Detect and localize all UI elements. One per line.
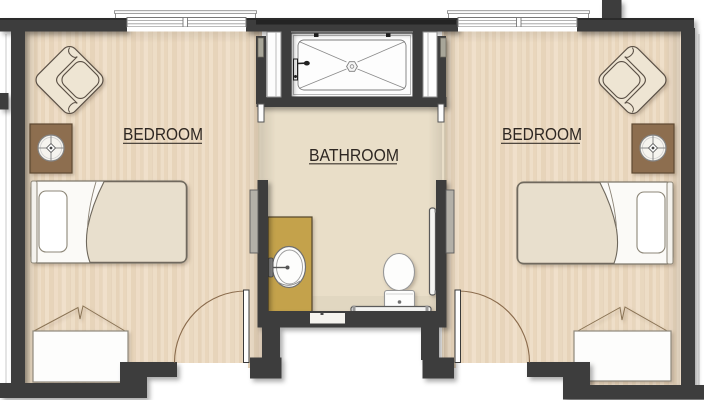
svg-text:BATHROOM: BATHROOM [309, 145, 399, 165]
svg-text:BEDROOM: BEDROOM [123, 124, 203, 144]
svg-text:BEDROOM: BEDROOM [502, 124, 582, 144]
